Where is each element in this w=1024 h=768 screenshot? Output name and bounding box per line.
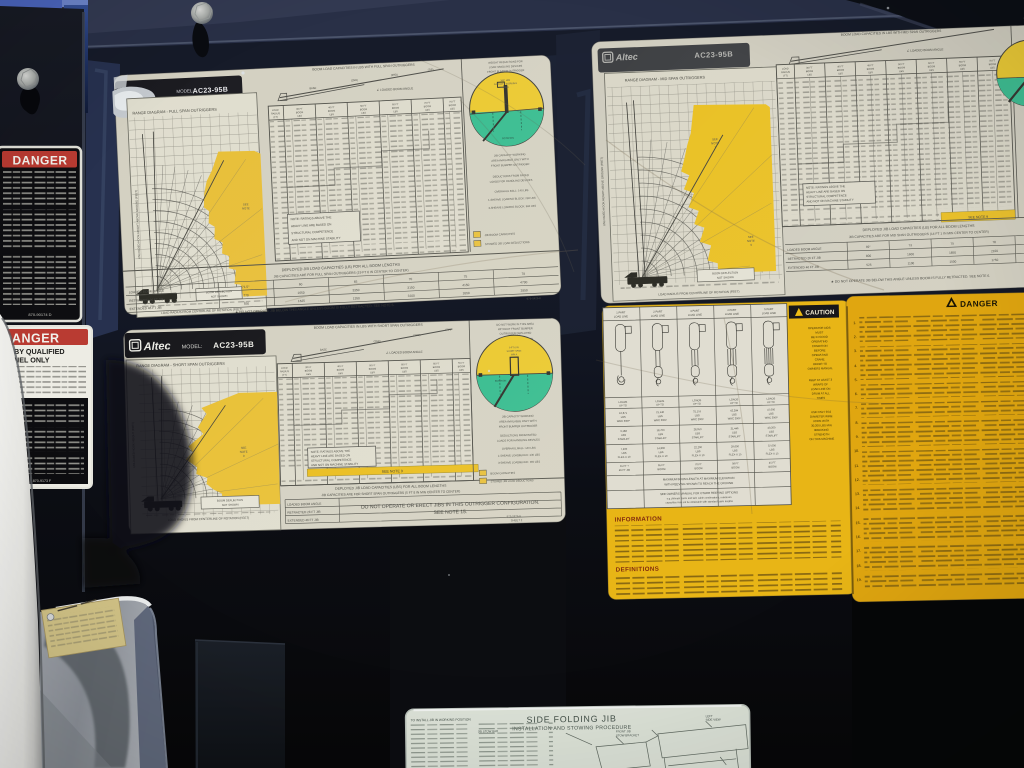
svg-text:LBS: LBS [659,450,664,454]
svg-text:1.: 1. [853,321,856,325]
svg-text:2 PART: 2 PART [653,309,663,313]
svg-text:10.: 10. [854,449,859,453]
svg-text:70 FT: 70 FT [695,462,702,466]
svg-text:42,284: 42,284 [730,408,739,412]
svg-text:870-9173 F: 870-9173 F [33,479,52,483]
svg-text:2.: 2. [854,335,857,339]
svg-text:LBS: LBS [770,447,775,451]
svg-text:FLEX-X 15: FLEX-X 15 [729,452,742,456]
svg-text:BOOM: BOOM [694,466,702,470]
svg-text:21,140: 21,140 [656,410,665,414]
svg-text:9.: 9. [856,435,859,439]
svg-text:LBS: LBS [696,449,701,453]
svg-text:LBS: LBS [658,414,663,418]
svg-text:STOW BRACKET: STOW BRACKET [616,733,639,737]
svg-text:LOAD LINE: LOAD LINE [725,312,739,316]
svg-text:46 FT JIB: 46 FT JIB [619,468,631,472]
svg-text:18,700: 18,700 [657,428,666,432]
svg-text:19.: 19. [857,578,862,582]
svg-text:28,050: 28,050 [694,427,703,431]
svg-text:NEL ONLY: NEL ONLY [14,356,50,365]
svg-text:LBS: LBS [733,448,738,452]
svg-text:LBS: LBS [769,429,774,433]
svg-text:LBS: LBS [695,431,700,435]
svg-text:22,200: 22,200 [694,445,703,449]
svg-text:14,800: 14,800 [657,446,666,450]
svg-text:DEFINITIONS: DEFINITIONS [616,566,660,574]
svg-text:UP TO: UP TO [656,402,664,406]
svg-text:FLEX-X 10: FLEX-X 10 [618,455,631,459]
svg-text:LBS: LBS [769,411,774,415]
svg-text:FLEX-X 10: FLEX-X 10 [655,454,668,458]
svg-text:UP TO: UP TO [730,401,738,405]
svg-text:29,600: 29,600 [731,444,740,448]
svg-text:FLEX-X 10: FLEX-X 10 [692,453,705,457]
svg-text:17.: 17. [856,549,861,553]
svg-text:UP TO: UP TO [767,400,775,404]
svg-text:15.: 15. [856,521,861,525]
svg-text:BOOM: BOOM [768,464,776,468]
svg-text:OWNERS MANUAL: OWNERS MANUAL [808,366,834,371]
svg-text:7.: 7. [855,406,858,410]
svg-text:12.: 12. [855,478,860,482]
svg-text:11.: 11. [854,464,859,468]
svg-text:870-90174 D: 870-90174 D [28,312,51,317]
svg-text:LOAD LINE: LOAD LINE [614,314,628,318]
svg-text:3.: 3. [854,349,857,353]
svg-text:WRC 300P: WRC 300P [765,415,778,419]
svg-text:31,151: 31,151 [693,409,702,413]
svg-text:ON THIS MACHINE: ON THIS MACHINE [809,437,834,442]
svg-text:UP TO: UP TO [619,403,627,407]
svg-text:37,000: 37,000 [768,443,777,447]
svg-text:7,400: 7,400 [621,447,628,451]
svg-text:STARLIFT: STARLIFT [729,434,742,438]
svg-text:LBS: LBS [732,412,737,416]
svg-text:16.: 16. [856,535,861,539]
svg-text:6.: 6. [855,392,858,396]
svg-text:LOAD LINE: LOAD LINE [762,311,776,315]
svg-text:TO INSTALL JIB IN WORKING POSI: TO INSTALL JIB IN WORKING POSITION [411,717,472,722]
svg-text:9,188: 9,188 [620,429,627,433]
svg-text:LBS: LBS [695,413,700,417]
svg-text:LBS: LBS [621,415,626,419]
svg-text:CAUTION: CAUTION [805,309,835,317]
svg-text:BOOM: BOOM [657,467,665,471]
svg-text:14.: 14. [855,506,860,510]
svg-text:UP TO: UP TO [693,402,701,406]
svg-text:LOAD LINE: LOAD LINE [688,313,702,317]
svg-text:DANGER: DANGER [12,154,67,168]
svg-text:3 PART: 3 PART [690,309,700,313]
svg-text:5 PART: 5 PART [764,307,774,311]
svg-text:8.: 8. [855,421,858,425]
svg-text:58 FT: 58 FT [732,461,739,465]
svg-text:5.: 5. [855,378,858,382]
svg-text:STARLIFT: STARLIFT [692,435,705,439]
svg-text:BOOM: BOOM [731,465,739,469]
svg-text:WRC 300P: WRC 300P [728,416,741,420]
svg-text:4.: 4. [854,364,857,368]
svg-text:18.: 18. [856,564,861,568]
svg-text:FLEX-X 15: FLEX-X 15 [766,451,779,455]
svg-text:STARLIFT: STARLIFT [655,436,668,440]
svg-text:LBS: LBS [658,432,663,436]
svg-text:JIB STOW BAR: JIB STOW BAR [478,729,498,733]
svg-text:INFORMATION: INFORMATION [614,516,662,524]
svg-text:WRC 300P: WRC 300P [617,419,630,423]
svg-text:WRC 300P: WRC 300P [691,417,704,421]
svg-text:45 FT: 45 FT [769,460,776,464]
svg-text:40,200: 40,200 [767,425,776,429]
svg-text:STARLIFT: STARLIFT [766,433,779,437]
svg-text:55 FT +: 55 FT + [620,464,630,468]
svg-text:13.: 13. [855,492,860,496]
svg-text:65 FT: 65 FT [658,463,665,467]
svg-text:979-0426-E: 979-0426-E [526,296,541,301]
svg-text:WRC 300P: WRC 300P [654,418,667,422]
svg-text:STARLIFT: STARLIFT [618,437,631,441]
svg-text:LOAD LINE: LOAD LINE [651,313,665,317]
svg-text:4 PART: 4 PART [727,308,737,312]
svg-text:SIDE VIEW: SIDE VIEW [706,718,721,722]
svg-text:31,446: 31,446 [730,426,739,430]
svg-text:LBS: LBS [622,451,627,455]
svg-text:47,000: 47,000 [767,407,776,411]
svg-text:LBS: LBS [732,430,737,434]
svg-text:DANGER: DANGER [960,299,998,309]
svg-text:1 PART: 1 PART [616,310,626,314]
svg-text:10,871: 10,871 [619,411,628,415]
svg-text:LBS: LBS [621,433,626,437]
